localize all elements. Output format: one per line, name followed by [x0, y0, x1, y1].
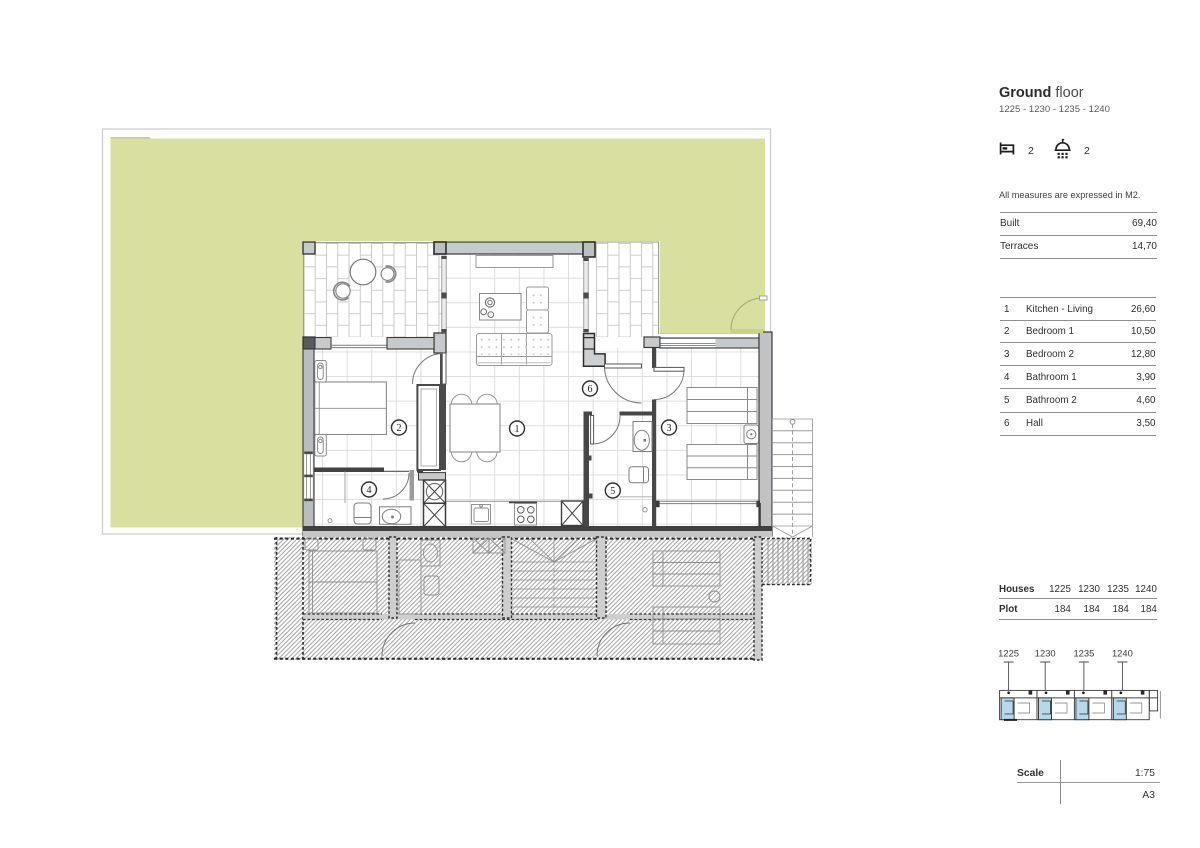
svg-text:1: 1	[515, 424, 520, 435]
svg-text:1230: 1230	[1035, 648, 1056, 659]
svg-text:6: 6	[588, 384, 593, 395]
svg-text:3: 3	[667, 423, 672, 434]
svg-text:1235: 1235	[1073, 648, 1094, 659]
svg-text:4: 4	[367, 485, 372, 496]
svg-text:5: 5	[610, 486, 615, 497]
svg-text:1240: 1240	[1112, 648, 1133, 659]
svg-text:2: 2	[397, 423, 402, 434]
svg-text:1225: 1225	[998, 648, 1019, 659]
